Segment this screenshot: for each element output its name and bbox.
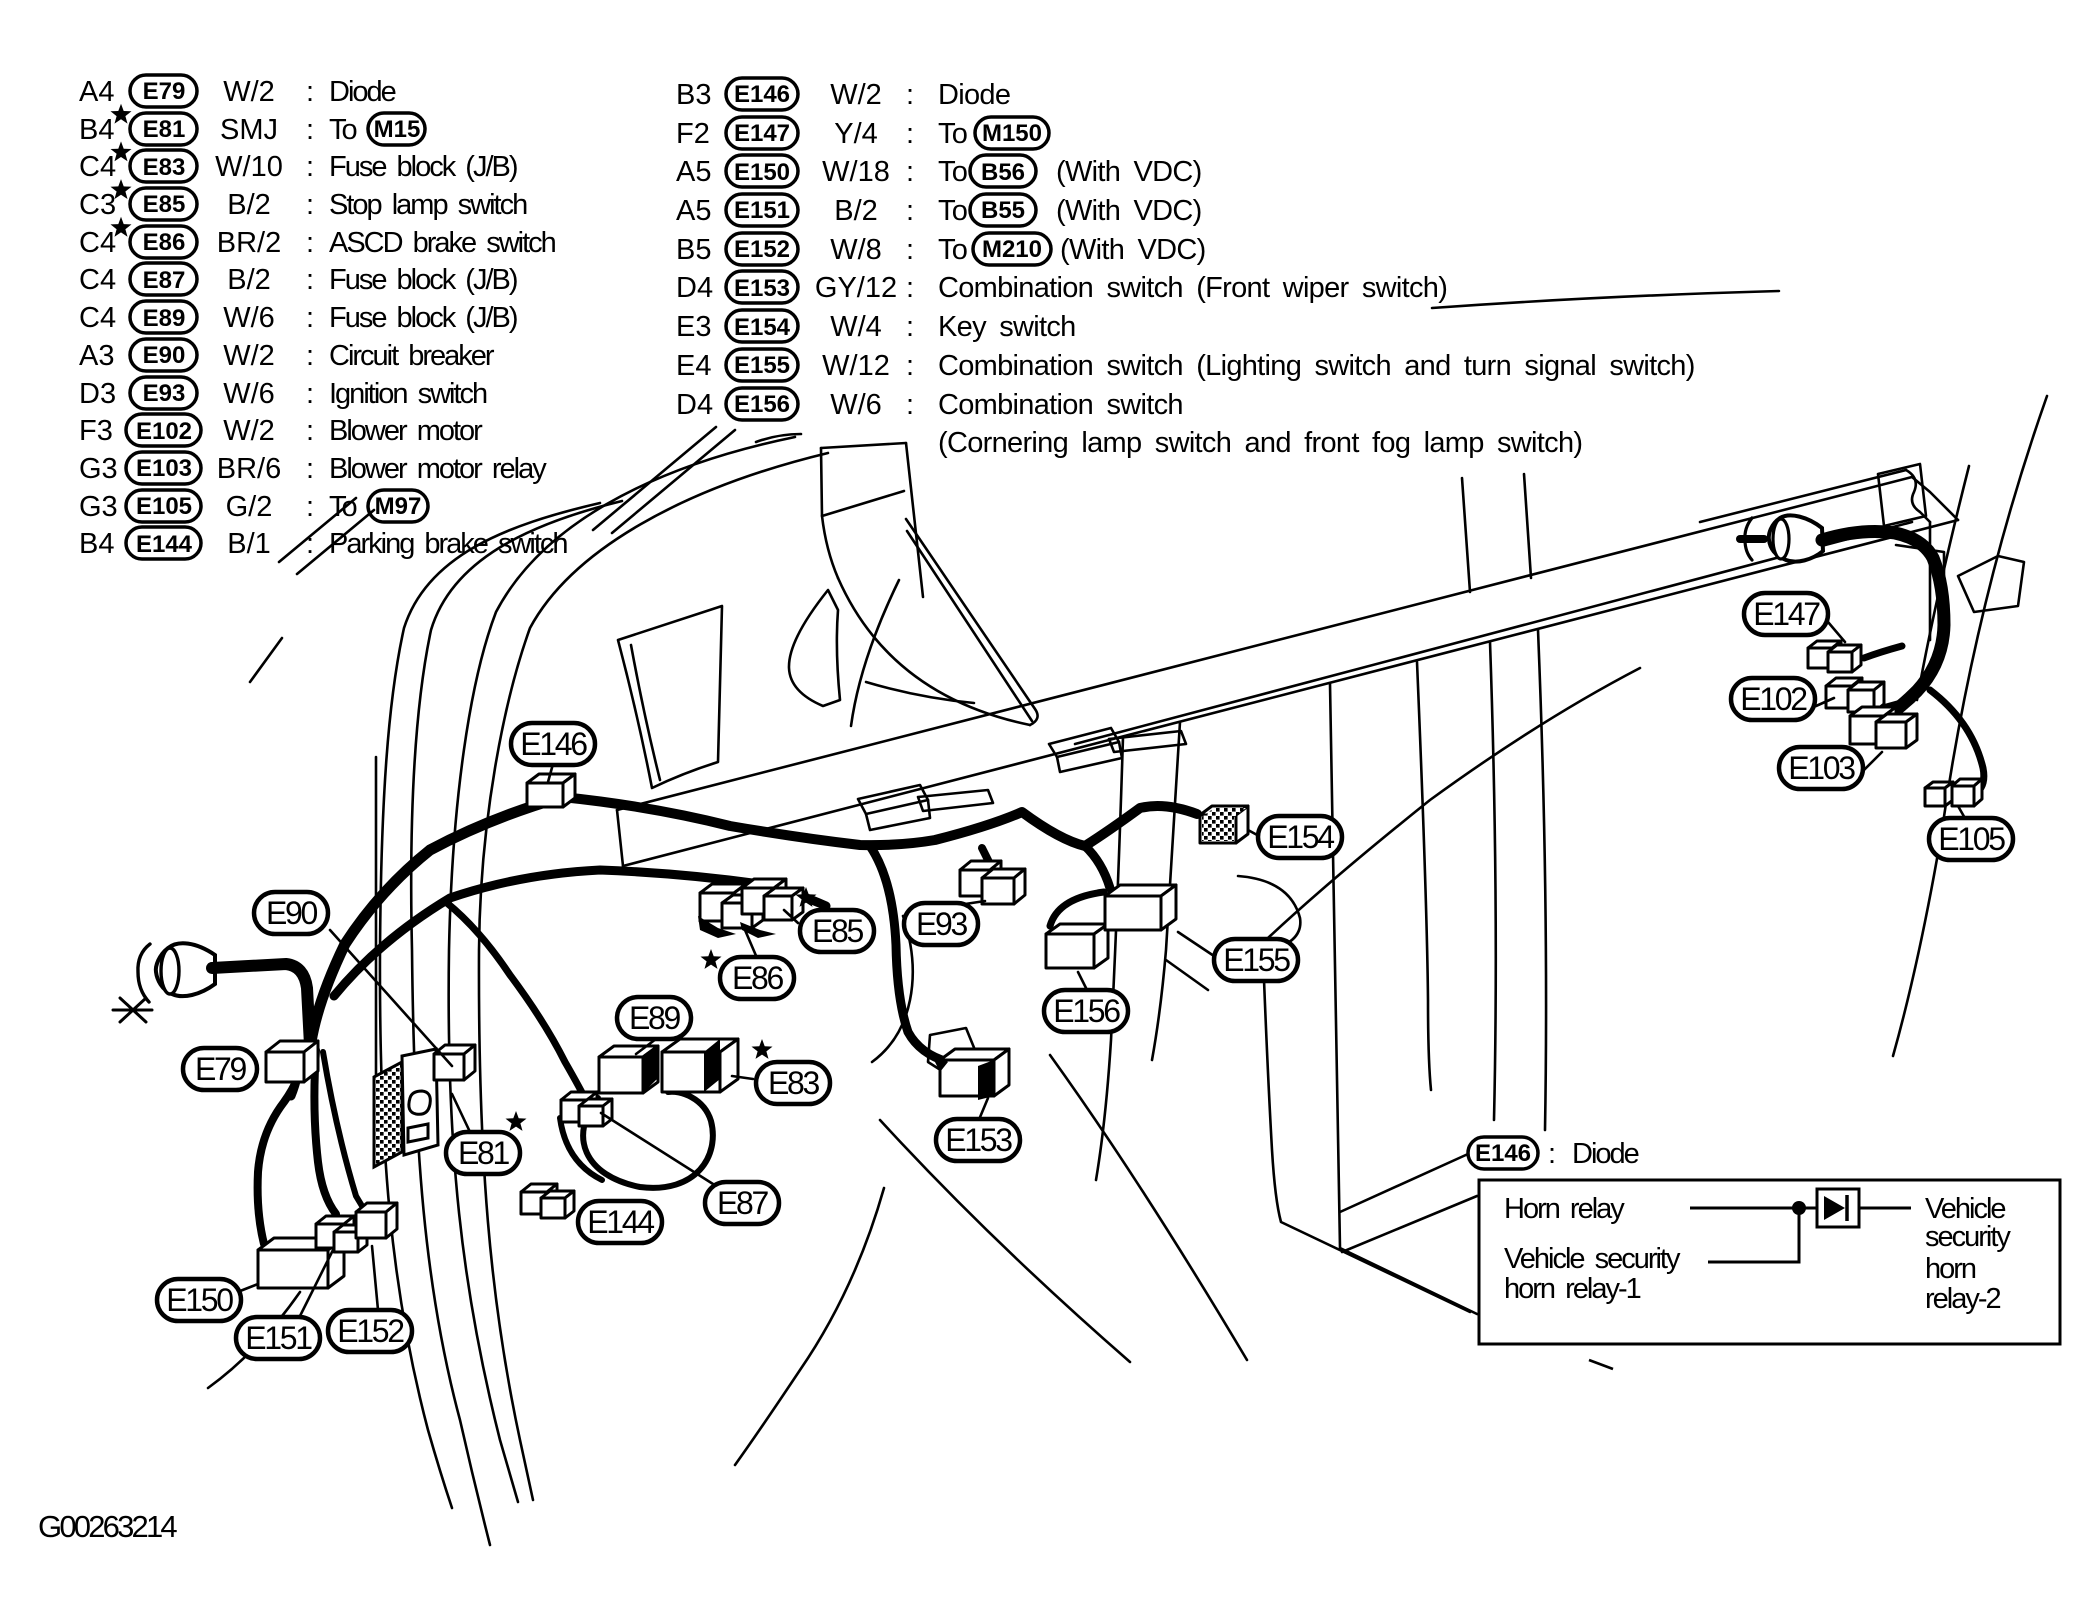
svg-text:E83: E83 <box>768 1065 820 1101</box>
svg-text:W/6: W/6 <box>223 302 275 334</box>
svg-text:To: To <box>938 156 967 188</box>
svg-text:W/2: W/2 <box>223 340 275 372</box>
svg-text::: : <box>906 79 914 111</box>
svg-text:E151: E151 <box>734 197 790 224</box>
svg-text:To: To <box>329 114 357 146</box>
svg-text:E146: E146 <box>520 726 587 762</box>
svg-text:C4: C4 <box>79 227 116 259</box>
svg-text:security: security <box>1925 1221 2011 1253</box>
svg-text:B/2: B/2 <box>227 189 271 221</box>
svg-text:E103: E103 <box>136 455 192 482</box>
svg-text:ASCD brake switch: ASCD brake switch <box>329 227 556 259</box>
svg-text:B4: B4 <box>79 114 114 146</box>
svg-text::: : <box>306 340 314 372</box>
svg-text::: : <box>306 189 314 221</box>
svg-text:A4: A4 <box>79 76 114 108</box>
svg-text:E154: E154 <box>734 314 791 341</box>
svg-text:Horn relay: Horn relay <box>1504 1193 1625 1225</box>
svg-text:E155: E155 <box>734 352 790 379</box>
svg-text:Stop lamp switch: Stop lamp switch <box>329 189 527 221</box>
svg-text:W/10: W/10 <box>215 151 283 183</box>
svg-text:Parking brake switch: Parking brake switch <box>329 528 567 560</box>
svg-text:G3: G3 <box>79 491 118 523</box>
svg-text::: : <box>906 350 914 382</box>
svg-text:E90: E90 <box>266 895 318 931</box>
svg-text:E4: E4 <box>676 350 711 382</box>
svg-text:E105: E105 <box>1938 821 2005 857</box>
svg-text:M97: M97 <box>375 493 422 520</box>
svg-text:Vehicle security: Vehicle security <box>1504 1243 1681 1275</box>
svg-text:E151: E151 <box>245 1320 312 1356</box>
svg-text:E89: E89 <box>143 305 186 332</box>
svg-text:W/6: W/6 <box>830 389 882 421</box>
svg-text:E86: E86 <box>732 960 784 996</box>
svg-text:F2: F2 <box>676 118 710 150</box>
svg-text:E81: E81 <box>143 116 186 143</box>
svg-text:D4: D4 <box>676 389 713 421</box>
svg-text:Ignition switch: Ignition switch <box>329 378 487 410</box>
svg-text:W/6: W/6 <box>223 378 275 410</box>
svg-text:E93: E93 <box>916 906 968 942</box>
svg-text:D4: D4 <box>676 272 713 304</box>
svg-text:G3: G3 <box>79 453 118 485</box>
svg-text::: : <box>306 378 314 410</box>
svg-text:E81: E81 <box>458 1135 510 1171</box>
svg-text:Circuit breaker: Circuit breaker <box>329 340 495 372</box>
svg-text:To: To <box>938 234 967 266</box>
svg-text::: : <box>306 415 314 447</box>
svg-text:C3: C3 <box>79 189 116 221</box>
svg-text::: : <box>906 118 914 150</box>
svg-text::: : <box>906 156 914 188</box>
svg-text:E93: E93 <box>143 380 186 407</box>
svg-text:E87: E87 <box>717 1185 769 1221</box>
svg-text:M150: M150 <box>982 120 1042 147</box>
svg-text:M15: M15 <box>374 116 421 143</box>
svg-text:SMJ: SMJ <box>220 114 278 146</box>
svg-text:E102: E102 <box>1740 681 1807 717</box>
svg-text:E102: E102 <box>136 418 192 445</box>
svg-text:E147: E147 <box>734 120 790 147</box>
svg-text:C4: C4 <box>79 302 116 334</box>
svg-text:E156: E156 <box>1053 993 1120 1029</box>
svg-text:E89: E89 <box>629 1000 681 1036</box>
svg-text:(With VDC): (With VDC) <box>1060 234 1206 266</box>
svg-text:(With VDC): (With VDC) <box>1056 156 1202 188</box>
svg-text:horn relay-1: horn relay-1 <box>1504 1273 1641 1305</box>
svg-text::: : <box>906 234 914 266</box>
svg-text:B56: B56 <box>981 159 1025 186</box>
svg-text:E146: E146 <box>734 81 790 108</box>
svg-text:To: To <box>938 118 967 150</box>
svg-text:W/2: W/2 <box>223 76 275 108</box>
svg-text:A3: A3 <box>79 340 114 372</box>
svg-text:E153: E153 <box>945 1122 1012 1158</box>
svg-text:(With VDC): (With VDC) <box>1056 195 1202 227</box>
svg-text::: : <box>306 302 314 334</box>
svg-text::: : <box>306 114 314 146</box>
svg-text:Fuse block (J/B): Fuse block (J/B) <box>329 302 517 334</box>
svg-text:E144: E144 <box>587 1204 654 1240</box>
svg-text:A5: A5 <box>676 156 711 188</box>
svg-text:W/12: W/12 <box>822 350 890 382</box>
svg-text::: : <box>906 272 914 304</box>
svg-text:C4: C4 <box>79 151 116 183</box>
svg-text:E86: E86 <box>143 229 186 256</box>
svg-text::: : <box>306 151 314 183</box>
svg-text:B55: B55 <box>981 197 1025 224</box>
svg-text::: : <box>906 195 914 227</box>
svg-text:E152: E152 <box>734 236 790 263</box>
svg-text:E83: E83 <box>143 154 186 181</box>
svg-text:M210: M210 <box>982 236 1042 263</box>
svg-text:E90: E90 <box>143 342 186 369</box>
svg-text:E79: E79 <box>195 1051 247 1087</box>
svg-text:E79: E79 <box>143 78 186 105</box>
svg-text:G/2: G/2 <box>226 491 273 523</box>
svg-text:G00263214: G00263214 <box>38 1509 177 1544</box>
svg-text:E150: E150 <box>734 159 790 186</box>
svg-text:E103: E103 <box>1788 750 1855 786</box>
svg-text:E85: E85 <box>812 913 864 949</box>
svg-text:W/2: W/2 <box>223 415 275 447</box>
svg-text:BR/2: BR/2 <box>217 227 281 259</box>
svg-text:W/18: W/18 <box>822 156 890 188</box>
svg-text:E155: E155 <box>1223 942 1290 978</box>
svg-text:D3: D3 <box>79 378 116 410</box>
svg-text:E152: E152 <box>337 1313 404 1349</box>
svg-text::: : <box>306 264 314 296</box>
svg-text:GY/12: GY/12 <box>815 272 897 304</box>
svg-text:E144: E144 <box>136 531 193 558</box>
svg-text:B/2: B/2 <box>834 195 878 227</box>
svg-text::: : <box>306 76 314 108</box>
svg-text:(Cornering lamp switch and fro: (Cornering lamp switch and front fog lam… <box>938 427 1582 459</box>
svg-text:To: To <box>938 195 967 227</box>
svg-text::: : <box>1548 1138 1556 1170</box>
svg-text:Diode: Diode <box>329 76 396 108</box>
svg-text:E153: E153 <box>734 275 790 302</box>
svg-text:B4: B4 <box>79 528 114 560</box>
svg-text:relay-2: relay-2 <box>1925 1283 2001 1315</box>
svg-text::: : <box>306 491 314 523</box>
svg-text:E146: E146 <box>1475 1140 1531 1167</box>
svg-text:E87: E87 <box>143 267 186 294</box>
svg-text:E85: E85 <box>143 191 186 218</box>
svg-text:Combination switch: Combination switch <box>938 389 1183 421</box>
svg-text:E147: E147 <box>1753 596 1820 632</box>
svg-text:A5: A5 <box>676 195 711 227</box>
svg-text:Diode: Diode <box>1572 1138 1639 1170</box>
svg-text:Blower motor relay: Blower motor relay <box>329 453 547 485</box>
svg-text::: : <box>906 311 914 343</box>
svg-text:W/4: W/4 <box>830 311 882 343</box>
svg-text:Diode: Diode <box>938 79 1010 111</box>
svg-text::: : <box>306 227 314 259</box>
svg-text:Fuse block (J/B): Fuse block (J/B) <box>329 151 517 183</box>
svg-text:B3: B3 <box>676 79 711 111</box>
svg-text:Combination switch (Front wipe: Combination switch (Front wiper switch) <box>938 272 1447 304</box>
svg-text:W/8: W/8 <box>830 234 882 266</box>
svg-text:B/1: B/1 <box>227 528 271 560</box>
svg-text:E154: E154 <box>1267 819 1334 855</box>
svg-text:horn: horn <box>1925 1253 1976 1285</box>
svg-text:Combination switch (Lighting s: Combination switch (Lighting switch and … <box>938 350 1695 382</box>
svg-text:BR/6: BR/6 <box>217 453 281 485</box>
svg-text:E156: E156 <box>734 391 790 418</box>
svg-text:B5: B5 <box>676 234 711 266</box>
svg-text::: : <box>306 453 314 485</box>
svg-text:B/2: B/2 <box>227 264 271 296</box>
svg-text:F3: F3 <box>79 415 113 447</box>
svg-text:Key switch: Key switch <box>938 311 1076 343</box>
svg-text:E150: E150 <box>166 1282 233 1318</box>
svg-text:Fuse block (J/B): Fuse block (J/B) <box>329 264 517 296</box>
svg-text:C4: C4 <box>79 264 116 296</box>
svg-text::: : <box>906 389 914 421</box>
svg-text:Y/4: Y/4 <box>834 118 878 150</box>
svg-text:W/2: W/2 <box>830 79 882 111</box>
svg-text:E3: E3 <box>676 311 711 343</box>
svg-text:E105: E105 <box>136 493 192 520</box>
svg-text:Blower motor: Blower motor <box>329 415 483 447</box>
